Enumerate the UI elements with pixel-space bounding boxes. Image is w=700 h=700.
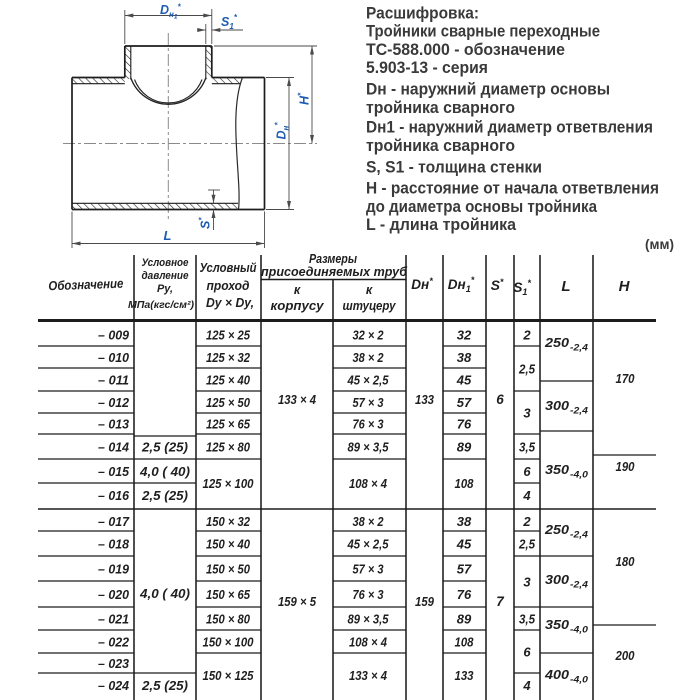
svg-text:– 014: – 014 xyxy=(98,439,130,454)
svg-text:штуцеру: штуцеру xyxy=(343,299,397,313)
svg-text:– 009: – 009 xyxy=(98,327,130,342)
svg-text:Ру,: Ру, xyxy=(157,283,173,295)
svg-text:133: 133 xyxy=(415,392,435,407)
svg-text:350: 350 xyxy=(545,617,570,632)
svg-text:76 × 3: 76 × 3 xyxy=(353,587,385,602)
svg-text:108 × 4: 108 × 4 xyxy=(349,476,388,491)
svg-text:180: 180 xyxy=(616,554,636,569)
svg-text:133 × 4: 133 × 4 xyxy=(349,668,388,683)
svg-text:к: к xyxy=(366,283,373,297)
svg-text:L - длина тройника: L - длина тройника xyxy=(366,216,517,234)
svg-text:– 012: – 012 xyxy=(98,395,130,410)
svg-text:200: 200 xyxy=(615,648,636,663)
svg-text:133 × 4: 133 × 4 xyxy=(278,392,317,407)
svg-text:МПа(кгс/см²): МПа(кгс/см²) xyxy=(128,299,195,311)
svg-text:присоединяемых труб: присоединяемых труб xyxy=(261,265,408,279)
svg-text:тройника сварного: тройника сварного xyxy=(366,99,515,117)
svg-text:108: 108 xyxy=(455,476,475,491)
svg-text:2: 2 xyxy=(522,327,531,342)
svg-text:Dу × Dу,: Dу × Dу, xyxy=(206,296,254,310)
svg-text:250: 250 xyxy=(544,335,570,350)
svg-text:Размеры: Размеры xyxy=(309,252,357,266)
svg-text:до диаметра основы тройника: до диаметра основы тройника xyxy=(366,198,598,216)
svg-text:H - расстояние от начала ответ: H - расстояние от начала ответвления xyxy=(366,180,659,198)
svg-text:159 × 5: 159 × 5 xyxy=(278,594,317,609)
svg-text:125 × 25: 125 × 25 xyxy=(206,327,251,342)
svg-text:45 × 2,5: 45 × 2,5 xyxy=(347,536,390,551)
svg-text:Расшифровка:: Расшифровка: xyxy=(366,5,479,23)
svg-text:– 017: – 017 xyxy=(98,514,130,529)
svg-text:38: 38 xyxy=(457,350,472,365)
svg-text:Dн1*: Dн1* xyxy=(448,275,475,294)
svg-text:2,5 (25): 2,5 (25) xyxy=(141,488,188,503)
svg-text:(мм): (мм) xyxy=(645,237,674,252)
svg-text:Условный: Условный xyxy=(200,261,257,275)
svg-text:170: 170 xyxy=(616,371,636,386)
svg-text:– 020: – 020 xyxy=(98,587,130,602)
svg-text:76: 76 xyxy=(457,587,472,602)
svg-text:45: 45 xyxy=(456,372,472,387)
svg-text:тройника сварного: тройника сварного xyxy=(366,137,515,155)
svg-text:6: 6 xyxy=(496,392,504,407)
svg-text:38 × 2: 38 × 2 xyxy=(353,350,385,365)
svg-text:– 010: – 010 xyxy=(98,350,130,365)
svg-text:32 × 2: 32 × 2 xyxy=(353,327,385,342)
svg-text:– 022: – 022 xyxy=(98,634,130,649)
svg-text:H: H xyxy=(619,278,631,295)
svg-text:125 × 50: 125 × 50 xyxy=(206,395,251,410)
svg-text:4,0 ( 40): 4,0 ( 40) xyxy=(139,464,190,479)
svg-text:давление: давление xyxy=(142,270,189,282)
svg-text:S, S1 - толщина стенки: S, S1 - толщина стенки xyxy=(366,158,542,176)
svg-text:L: L xyxy=(164,228,172,243)
svg-text:3,5: 3,5 xyxy=(519,611,536,626)
svg-text:108: 108 xyxy=(455,634,475,649)
svg-text:190: 190 xyxy=(616,459,636,474)
svg-text:150 × 32: 150 × 32 xyxy=(206,514,251,529)
svg-text:проход: проход xyxy=(207,279,250,293)
svg-text:Условное: Условное xyxy=(142,257,189,269)
svg-text:-2,4: -2,4 xyxy=(570,406,589,417)
svg-text:Обозначение: Обозначение xyxy=(48,276,123,294)
svg-text:150 × 65: 150 × 65 xyxy=(206,587,251,602)
svg-text:– 011: – 011 xyxy=(98,372,129,387)
svg-text:2: 2 xyxy=(522,514,531,529)
svg-text:150 × 100: 150 × 100 xyxy=(203,634,255,649)
svg-text:6: 6 xyxy=(523,464,531,479)
svg-text:Dн1 - наружний диаметр ответвл: Dн1 - наружний диаметр ответвления xyxy=(366,119,653,137)
svg-text:150 × 125: 150 × 125 xyxy=(203,668,255,683)
svg-text:89: 89 xyxy=(457,611,472,626)
svg-text:– 016: – 016 xyxy=(98,488,130,503)
svg-text:– 015: – 015 xyxy=(98,464,130,479)
svg-text:57 × 3: 57 × 3 xyxy=(353,395,385,410)
svg-text:133: 133 xyxy=(455,668,475,683)
svg-text:6: 6 xyxy=(523,644,531,659)
svg-text:к: к xyxy=(294,283,301,297)
svg-text:38: 38 xyxy=(457,514,472,529)
svg-text:159: 159 xyxy=(415,594,435,609)
svg-text:250: 250 xyxy=(544,522,570,537)
svg-text:– 019: – 019 xyxy=(98,561,130,576)
svg-text:125 × 100: 125 × 100 xyxy=(203,476,255,491)
svg-text:L: L xyxy=(561,278,570,295)
svg-text:2,5 (25): 2,5 (25) xyxy=(141,678,188,693)
svg-text:-2,4: -2,4 xyxy=(570,343,589,354)
svg-text:ТС-588.000 - обозначение: ТС-588.000 - обозначение xyxy=(366,41,565,59)
svg-text:57 × 3: 57 × 3 xyxy=(353,561,385,576)
svg-text:5.903-13 - серия: 5.903-13 - серия xyxy=(366,59,488,77)
svg-text:3: 3 xyxy=(523,574,531,589)
svg-text:76 × 3: 76 × 3 xyxy=(353,416,385,431)
svg-text:125 × 80: 125 × 80 xyxy=(206,439,251,454)
svg-text:125 × 32: 125 × 32 xyxy=(206,350,251,365)
svg-text:-4,0: -4,0 xyxy=(570,675,589,686)
svg-text:89 × 3,5: 89 × 3,5 xyxy=(348,611,390,626)
svg-text:45 × 2,5: 45 × 2,5 xyxy=(347,372,390,387)
svg-text:350: 350 xyxy=(545,462,570,477)
svg-text:-2,4: -2,4 xyxy=(570,530,589,541)
svg-text:150 × 50: 150 × 50 xyxy=(206,561,251,576)
svg-text:– 013: – 013 xyxy=(98,416,130,431)
svg-text:4: 4 xyxy=(522,488,531,503)
svg-text:Тройники сварные переходные: Тройники сварные переходные xyxy=(366,22,600,40)
svg-text:300: 300 xyxy=(545,398,570,413)
svg-text:2,5: 2,5 xyxy=(518,536,536,551)
svg-text:150 × 80: 150 × 80 xyxy=(206,611,251,626)
svg-text:57: 57 xyxy=(457,561,472,576)
svg-text:-4,0: -4,0 xyxy=(570,625,589,636)
svg-text:57: 57 xyxy=(457,395,472,410)
svg-text:4,0 ( 40): 4,0 ( 40) xyxy=(139,586,190,601)
svg-text:– 024: – 024 xyxy=(98,678,130,693)
svg-text:89: 89 xyxy=(457,439,472,454)
svg-text:150 × 40: 150 × 40 xyxy=(206,536,251,551)
svg-text:400: 400 xyxy=(544,667,570,682)
svg-text:– 018: – 018 xyxy=(98,536,130,551)
svg-text:-4,0: -4,0 xyxy=(570,470,589,481)
svg-text:4: 4 xyxy=(522,678,531,693)
svg-text:38 × 2: 38 × 2 xyxy=(353,514,385,529)
svg-text:76: 76 xyxy=(457,416,472,431)
svg-text:32: 32 xyxy=(457,327,472,342)
svg-text:108 × 4: 108 × 4 xyxy=(349,634,388,649)
svg-text:3: 3 xyxy=(523,405,531,420)
svg-text:2,5: 2,5 xyxy=(518,361,536,376)
svg-text:125 × 40: 125 × 40 xyxy=(206,372,251,387)
svg-text:300: 300 xyxy=(545,572,570,587)
svg-text:45: 45 xyxy=(456,536,472,551)
svg-text:– 021: – 021 xyxy=(98,611,129,626)
svg-text:3,5: 3,5 xyxy=(519,439,536,454)
svg-text:2,5 (25): 2,5 (25) xyxy=(141,439,188,454)
svg-text:125 × 65: 125 × 65 xyxy=(206,416,251,431)
svg-text:89 × 3,5: 89 × 3,5 xyxy=(348,439,390,454)
svg-text:Dн - наружний диаметр основы: Dн - наружний диаметр основы xyxy=(366,81,610,99)
svg-text:корпусу: корпусу xyxy=(271,299,325,313)
svg-text:– 023: – 023 xyxy=(98,656,130,671)
svg-text:-2,4: -2,4 xyxy=(570,580,589,591)
